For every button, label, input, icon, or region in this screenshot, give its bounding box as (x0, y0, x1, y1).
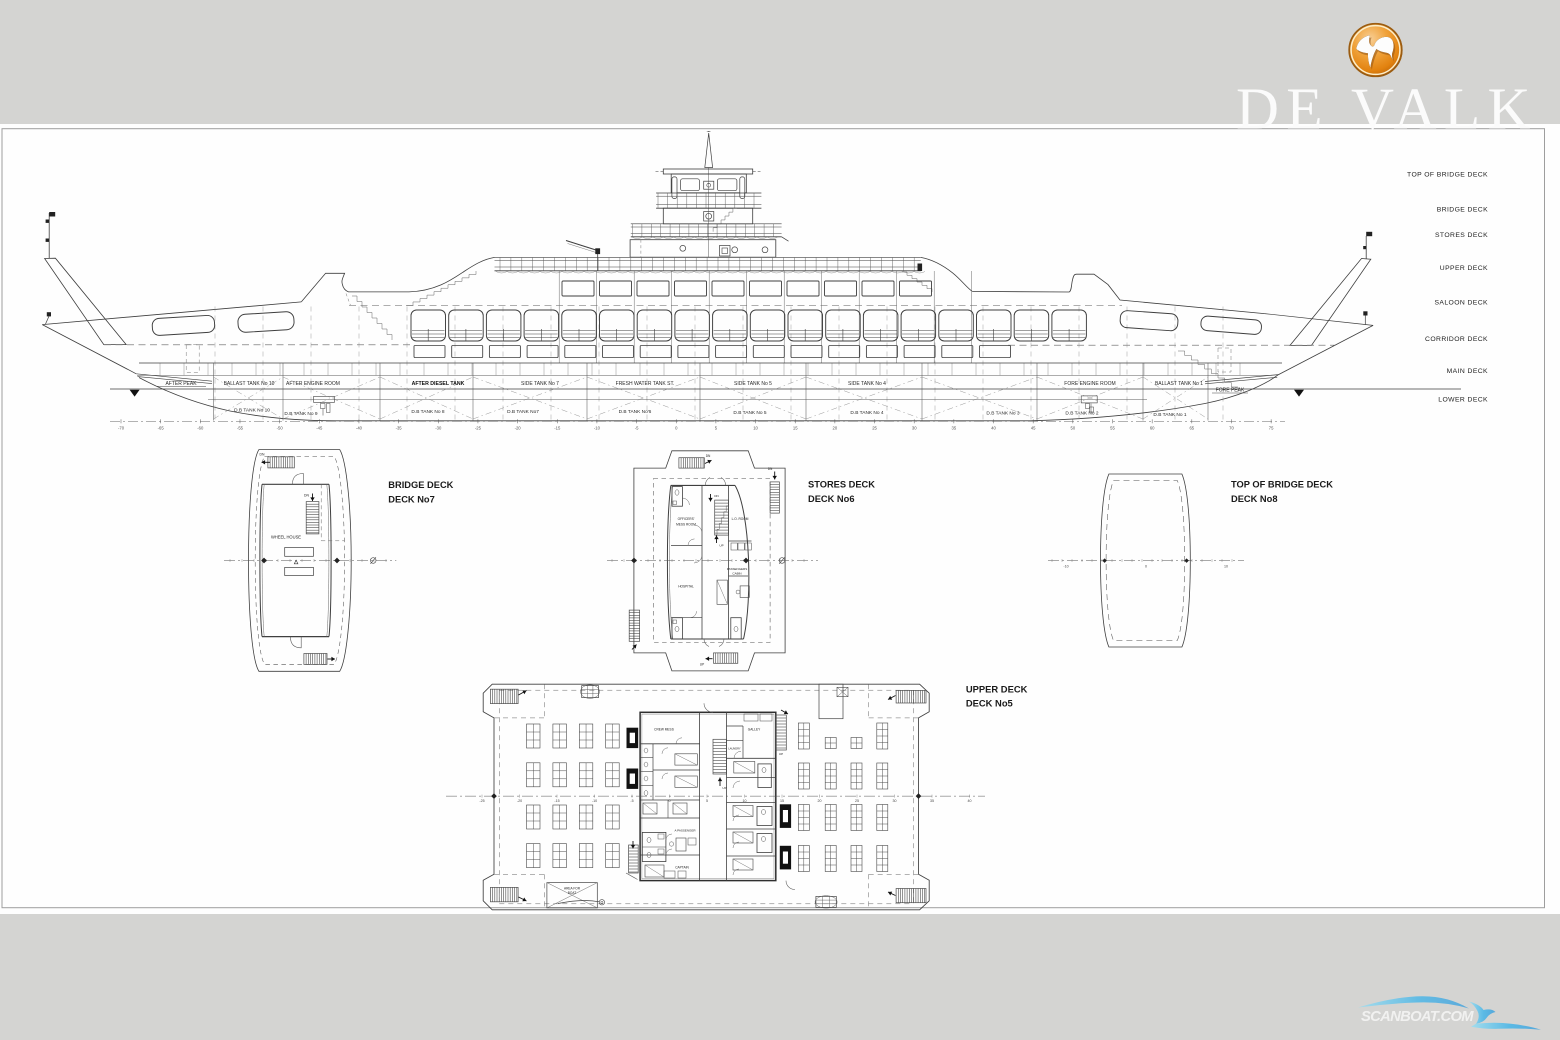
svg-text:D.B TANK No'6: D.B TANK No'6 (619, 409, 652, 415)
svg-text:UP: UP (700, 663, 704, 667)
svg-text:5: 5 (706, 799, 708, 803)
svg-text:AFTER DIESEL TANK: AFTER DIESEL TANK (412, 381, 465, 387)
svg-text:10: 10 (753, 426, 758, 431)
svg-text:BRIDGE DECK: BRIDGE DECK (1437, 207, 1488, 214)
svg-text:DECK No6: DECK No6 (808, 494, 855, 504)
svg-text:-65: -65 (158, 426, 165, 431)
svg-text:-55: -55 (237, 426, 244, 431)
svg-text:25: 25 (872, 426, 877, 431)
svg-text:D.B TANK No7: D.B TANK No7 (507, 409, 539, 415)
svg-text:-10: -10 (1063, 565, 1068, 569)
svg-text:15: 15 (780, 799, 784, 803)
svg-text:HOSPITAL: HOSPITAL (678, 585, 694, 589)
svg-text:STORES DECK: STORES DECK (1435, 232, 1488, 239)
svg-text:30: 30 (893, 799, 897, 803)
svg-text:40: 40 (968, 799, 972, 803)
svg-text:FORE ENGINE ROOM: FORE ENGINE ROOM (1064, 381, 1115, 387)
svg-text:LAUNDRY: LAUNDRY (728, 747, 741, 751)
svg-text:25: 25 (855, 799, 859, 803)
svg-text:BALLAST TANK No 1: BALLAST TANK No 1 (1155, 381, 1203, 387)
svg-text:L.O. ROOM: L.O. ROOM (732, 517, 749, 521)
svg-text:DN: DN (304, 494, 309, 498)
svg-text:CAPTAIN: CAPTAIN (675, 866, 689, 870)
svg-text:UPPER DECK: UPPER DECK (1440, 265, 1488, 272)
svg-text:UP: UP (719, 544, 723, 548)
svg-text:-35: -35 (396, 426, 403, 431)
svg-text:50: 50 (1071, 426, 1076, 431)
svg-text:DN: DN (714, 494, 718, 498)
svg-text:15: 15 (793, 426, 798, 431)
svg-text:DECK No5: DECK No5 (966, 698, 1013, 709)
svg-text:SIDE TANK No 4: SIDE TANK No 4 (848, 381, 886, 387)
svg-text:D.B TANK No 10: D.B TANK No 10 (234, 408, 270, 414)
svg-text:20: 20 (833, 426, 838, 431)
svg-text:BOAT: BOAT (568, 891, 576, 895)
svg-text:35: 35 (952, 426, 957, 431)
svg-text:30: 30 (912, 426, 917, 431)
svg-text:65: 65 (1189, 426, 1194, 431)
svg-text:70: 70 (1229, 426, 1234, 431)
svg-text:10: 10 (1224, 565, 1228, 569)
svg-text:-15: -15 (554, 799, 559, 803)
svg-text:-10: -10 (592, 799, 597, 803)
svg-text:SIDE TANK No 5: SIDE TANK No 5 (734, 381, 772, 387)
svg-text:0: 0 (669, 799, 671, 803)
svg-text:-15: -15 (554, 426, 561, 431)
svg-text:-45: -45 (316, 426, 323, 431)
svg-text:SCANBOAT.COM: SCANBOAT.COM (1361, 1009, 1474, 1025)
svg-text:D.B TANK No 3: D.B TANK No 3 (986, 411, 1019, 417)
svg-text:-60: -60 (197, 426, 204, 431)
svg-text:D.B TANK No 1: D.B TANK No 1 (1153, 412, 1186, 418)
svg-text:0: 0 (1145, 565, 1147, 569)
svg-text:-5: -5 (630, 799, 633, 803)
svg-text:DECK No7: DECK No7 (388, 495, 435, 505)
svg-text:UPPER DECK: UPPER DECK (966, 684, 1028, 695)
svg-text:DE VALK: DE VALK (1236, 76, 1538, 142)
svg-text:10: 10 (743, 799, 747, 803)
svg-text:DN: DN (706, 454, 711, 458)
svg-text:FRESH WATER TANK ST.: FRESH WATER TANK ST. (616, 381, 675, 387)
svg-text:OFFICERS': OFFICERS' (678, 517, 695, 521)
svg-text:UP: UP (779, 752, 783, 756)
svg-text:AREA FOR: AREA FOR (564, 887, 581, 891)
svg-text:AFTER ENGINE ROOM: AFTER ENGINE ROOM (286, 381, 340, 387)
svg-text:SIDE TANK No 7: SIDE TANK No 7 (521, 381, 559, 387)
svg-text:-20: -20 (517, 799, 522, 803)
svg-text:-70: -70 (118, 426, 125, 431)
svg-text:-40: -40 (356, 426, 363, 431)
svg-text:TOP OF BRIDGE DECK: TOP OF BRIDGE DECK (1231, 480, 1333, 490)
svg-text:-10: -10 (594, 426, 601, 431)
svg-text:75: 75 (1269, 426, 1274, 431)
svg-text:DN: DN (768, 467, 773, 471)
svg-text:STORES DECK: STORES DECK (808, 480, 875, 490)
svg-text:DECK No8: DECK No8 (1231, 494, 1278, 504)
svg-text:SALOON DECK: SALOON DECK (1434, 300, 1488, 307)
svg-text:-20: -20 (515, 426, 522, 431)
svg-text:A PASSENGER: A PASSENGER (674, 829, 696, 833)
svg-text:UP: UP (722, 786, 726, 790)
svg-text:CABIN: CABIN (732, 572, 741, 576)
svg-text:-30: -30 (435, 426, 442, 431)
svg-text:60: 60 (1150, 426, 1155, 431)
svg-text:-5: -5 (635, 426, 639, 431)
svg-text:-25: -25 (479, 799, 484, 803)
svg-text:FORE PEAK: FORE PEAK (1216, 388, 1245, 394)
svg-text:MESS ROOM: MESS ROOM (676, 523, 696, 527)
svg-text:BRIDGE DECK: BRIDGE DECK (388, 480, 453, 490)
svg-text:-50: -50 (277, 426, 284, 431)
svg-text:CREW MESS: CREW MESS (654, 728, 674, 732)
svg-text:40: 40 (991, 426, 996, 431)
svg-text:20: 20 (818, 799, 822, 803)
svg-text:55: 55 (1110, 426, 1115, 431)
svg-text:35: 35 (930, 799, 934, 803)
svg-text:D.B TANK No 2: D.B TANK No 2 (1065, 411, 1098, 417)
svg-text:CORRIDOR DECK: CORRIDOR DECK (1425, 336, 1488, 343)
svg-text:PASSENGERS: PASSENGERS (727, 567, 747, 571)
svg-text:D.B TANK No 5: D.B TANK No 5 (733, 410, 766, 416)
svg-text:BALLAST TANK No 10: BALLAST TANK No 10 (224, 381, 275, 387)
svg-text:D.B TANK No 8: D.B TANK No 8 (411, 409, 444, 415)
svg-text:D.B TANK No 9: D.B TANK No 9 (284, 411, 317, 417)
svg-text:-25: -25 (475, 426, 482, 431)
svg-text:DN: DN (260, 453, 265, 457)
svg-text:TOP OF BRIDGE DECK: TOP OF BRIDGE DECK (1407, 172, 1488, 179)
svg-text:GALLEY: GALLEY (748, 728, 761, 732)
svg-text:45: 45 (1031, 426, 1036, 431)
svg-text:D.B TANK No 4: D.B TANK No 4 (850, 410, 883, 416)
svg-text:WHEEL HOUSE: WHEEL HOUSE (271, 534, 301, 539)
svg-text:MAIN DECK: MAIN DECK (1447, 368, 1488, 375)
svg-text:LOWER DECK: LOWER DECK (1438, 396, 1488, 403)
